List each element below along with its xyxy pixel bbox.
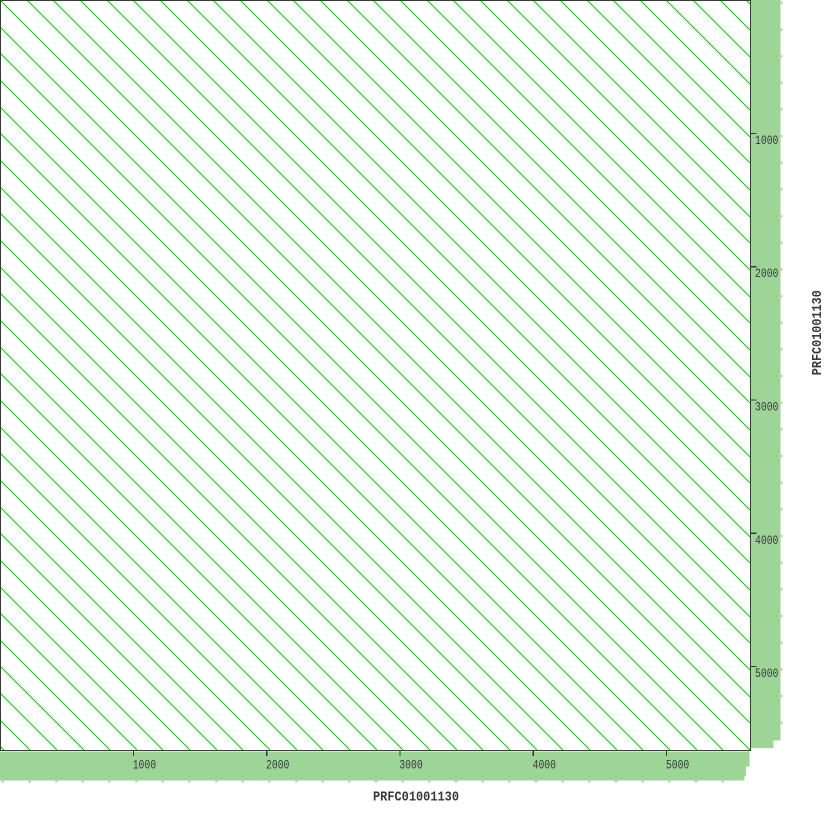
svg-text:3000: 3000 [755,400,778,415]
svg-text:5000: 5000 [666,758,689,773]
svg-text:PRFC01001130: PRFC01001130 [810,290,826,375]
svg-text:2000: 2000 [755,266,778,281]
svg-text:1000: 1000 [755,133,778,148]
svg-text:2000: 2000 [266,758,289,773]
svg-text:1000: 1000 [133,758,156,773]
svg-text:5000: 5000 [755,666,778,681]
svg-text:3000: 3000 [399,758,422,773]
svg-text:4000: 4000 [533,758,556,773]
svg-text:PRFC01001130: PRFC01001130 [373,790,459,806]
svg-text:4000: 4000 [755,533,778,548]
